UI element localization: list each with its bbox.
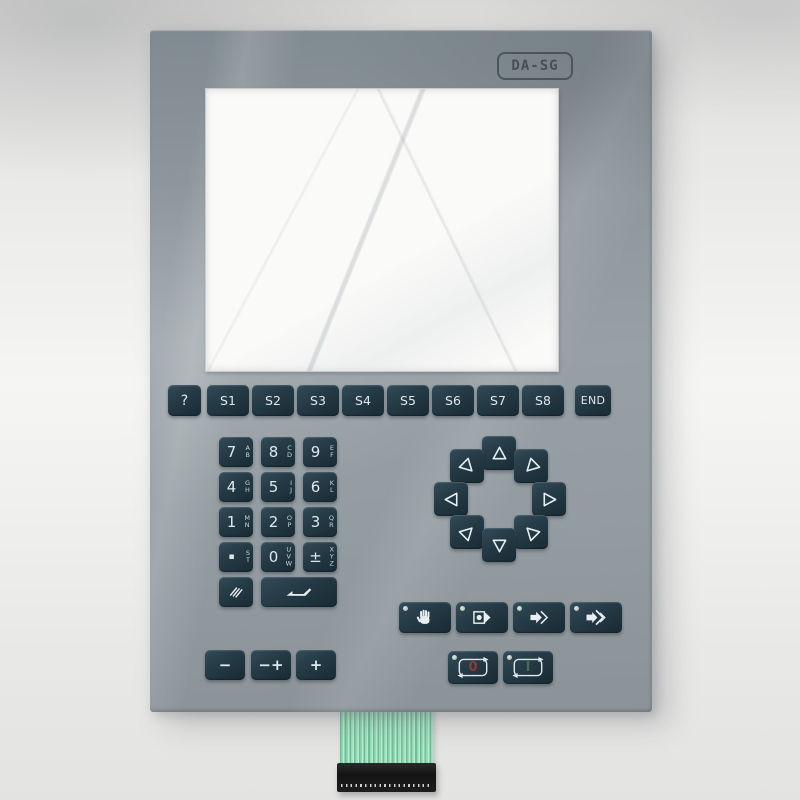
- arrow-down-left-key[interactable]: [450, 515, 484, 549]
- manual-mode-key[interactable]: [399, 602, 451, 633]
- off-symbol: 0: [448, 661, 498, 674]
- on-symbol: I: [503, 661, 553, 674]
- arrow-up-left-key[interactable]: [450, 449, 484, 483]
- arrow-right-key[interactable]: [532, 482, 566, 516]
- key-4[interactable]: 4G H: [219, 472, 253, 502]
- screen-advance-key[interactable]: [456, 602, 508, 633]
- minus-plus-key[interactable]: −+: [251, 650, 291, 680]
- key-5-label: 5: [269, 480, 279, 495]
- arrow-down-key[interactable]: [482, 528, 516, 562]
- key-decimal-label: ▪: [228, 553, 234, 562]
- enter-key[interactable]: [261, 577, 337, 607]
- triangle-up-left-icon: [518, 519, 545, 546]
- plus-key[interactable]: +: [296, 650, 336, 680]
- correction-slashes-icon: [227, 584, 245, 600]
- key-1-label: 1: [227, 515, 237, 530]
- end-key[interactable]: END: [575, 385, 611, 416]
- triangle-left-icon: [442, 490, 461, 509]
- key-5-letters: I J: [290, 480, 292, 494]
- connector-pins: [341, 784, 432, 787]
- key-4-letters: G H: [245, 480, 250, 494]
- key-plusminus-label: ±: [309, 550, 322, 565]
- numeric-keypad: 7A B 8C D 9E F 4G H 5I J 6K L 1M N 2O P …: [219, 437, 337, 572]
- arrow-up-right-key[interactable]: [514, 449, 548, 483]
- arrow-skip-icon: [584, 608, 608, 627]
- triangle-down-icon: [490, 536, 509, 555]
- key-plusminus-letters: X Y Z: [330, 547, 334, 568]
- key-plusminus[interactable]: ±X Y Z: [303, 542, 337, 572]
- key-2-letters: O P: [287, 515, 292, 529]
- led-indicator: [403, 606, 408, 611]
- key-6-label: 6: [311, 480, 321, 495]
- key-decimal[interactable]: ▪S T: [219, 542, 253, 572]
- key-0-label: 0: [269, 550, 279, 565]
- key-3-letters: Q R: [329, 515, 334, 529]
- key-9-label: 9: [311, 445, 321, 460]
- key-s5[interactable]: S5: [387, 385, 429, 416]
- function-key-row: ? S1 S2 S3 S4 S5 S6 S7 S8 END: [168, 385, 611, 416]
- key-s3[interactable]: S3: [297, 385, 339, 416]
- key-s1[interactable]: S1: [207, 385, 249, 416]
- led-indicator: [452, 655, 457, 660]
- key-7[interactable]: 7A B: [219, 437, 253, 467]
- photo-background: DA-SG ? S1 S2 S3 S4 S5 S6 S7 S8 END 7A B…: [0, 0, 800, 800]
- page-skip-key[interactable]: [570, 602, 622, 633]
- key-8-letters: C D: [287, 445, 292, 459]
- key-decimal-letters: S T: [246, 550, 250, 564]
- led-indicator: [507, 655, 512, 660]
- model-badge: DA-SG: [497, 52, 573, 80]
- arrow-up-key[interactable]: [482, 436, 516, 470]
- led-indicator: [517, 606, 522, 611]
- hand-icon: [416, 608, 435, 627]
- minus-key[interactable]: −: [205, 650, 245, 680]
- key-8[interactable]: 8C D: [261, 437, 295, 467]
- key-s7[interactable]: S7: [477, 385, 519, 416]
- screen-advance-icon: [471, 608, 493, 627]
- enter-return-icon: [284, 586, 314, 599]
- arrow-left-key[interactable]: [434, 482, 468, 516]
- key-7-letters: A B: [246, 445, 250, 459]
- key-1-letters: M N: [244, 515, 250, 529]
- display-window: [205, 88, 559, 372]
- key-s8[interactable]: S8: [522, 385, 564, 416]
- key-6[interactable]: 6K L: [303, 472, 337, 502]
- key-9[interactable]: 9E F: [303, 437, 337, 467]
- key-8-label: 8: [269, 445, 279, 460]
- key-3-label: 3: [311, 515, 321, 530]
- arrow-advance-icon: [528, 608, 550, 627]
- key-5[interactable]: 5I J: [261, 472, 295, 502]
- on-key[interactable]: I: [503, 651, 553, 684]
- correction-key[interactable]: [219, 577, 253, 607]
- key-1[interactable]: 1M N: [219, 507, 253, 537]
- triangle-right-icon: [540, 490, 559, 509]
- ribbon-connector: [337, 763, 436, 792]
- key-4-label: 4: [227, 480, 237, 495]
- key-2[interactable]: 2O P: [261, 507, 295, 537]
- key-9-letters: E F: [330, 445, 334, 459]
- key-s4[interactable]: S4: [342, 385, 384, 416]
- arrow-down-right-key[interactable]: [514, 515, 548, 549]
- triangle-down-right-icon: [454, 453, 481, 480]
- key-s6[interactable]: S6: [432, 385, 474, 416]
- membrane-keypad-panel: DA-SG ? S1 S2 S3 S4 S5 S6 S7 S8 END 7A B…: [150, 30, 652, 712]
- key-0[interactable]: 0U V W: [261, 542, 295, 572]
- key-7-label: 7: [227, 445, 237, 460]
- triangle-up-right-icon: [454, 519, 481, 546]
- key-s2[interactable]: S2: [252, 385, 294, 416]
- key-6-letters: K L: [330, 480, 334, 494]
- page-forward-key[interactable]: [513, 602, 565, 633]
- help-key[interactable]: ?: [168, 385, 201, 416]
- led-indicator: [574, 606, 579, 611]
- triangle-down-left-icon: [518, 453, 545, 480]
- triangle-up-icon: [490, 444, 509, 463]
- key-3[interactable]: 3Q R: [303, 507, 337, 537]
- key-2-label: 2: [269, 515, 279, 530]
- off-key[interactable]: 0: [448, 651, 498, 684]
- led-indicator: [460, 606, 465, 611]
- key-0-letters: U V W: [286, 547, 292, 568]
